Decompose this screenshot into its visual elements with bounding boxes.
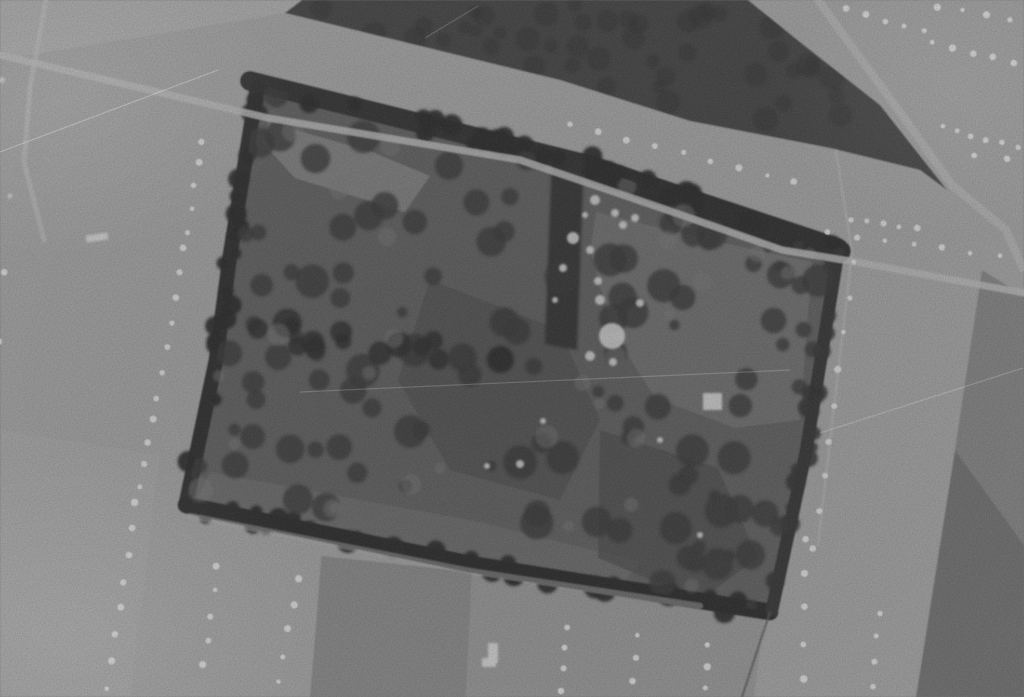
grain-overlay-light (0, 0, 1024, 697)
photo-canvas (0, 0, 1024, 697)
aerial-photo-svg (0, 0, 1024, 697)
aerial-photograph (0, 0, 1024, 697)
